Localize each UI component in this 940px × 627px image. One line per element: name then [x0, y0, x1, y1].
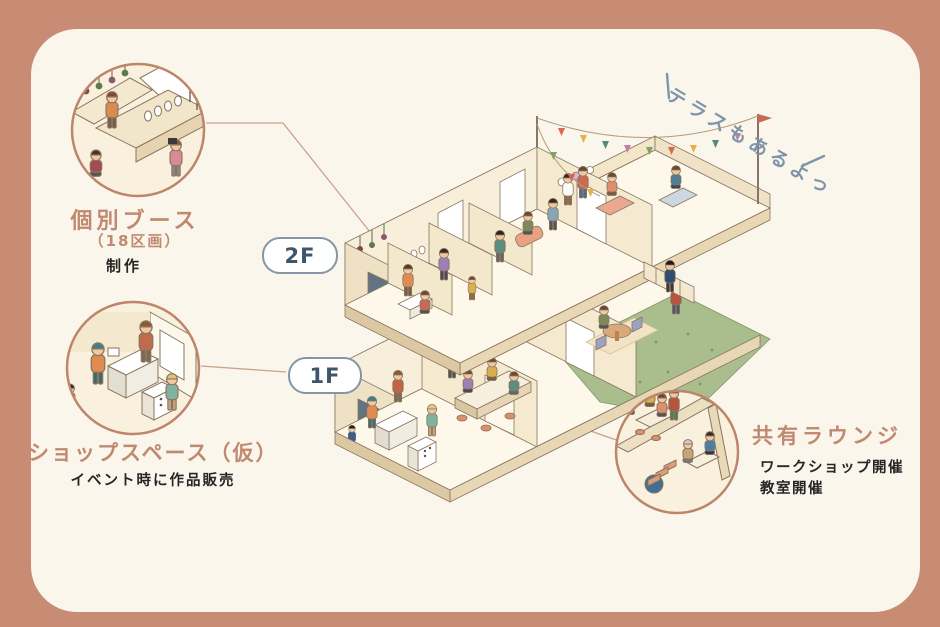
- shop-circle-illustration: [64, 302, 199, 434]
- booth-description: 制作: [30, 255, 218, 276]
- shop-title: ショップスペース（仮）: [28, 437, 278, 467]
- floor-label-2f: 2F: [262, 237, 338, 274]
- lounge-description-2: 教室開催: [760, 477, 824, 498]
- isometric-building-illustration: [0, 0, 940, 627]
- booth-circle-illustration: [72, 40, 210, 196]
- lounge-description-1: ワークショップ開催: [760, 456, 904, 477]
- infographic-floor-guide: 個別ブース （18区画） 制作 ショップスペース（仮） イベント時に作品販売 共…: [0, 0, 940, 627]
- lounge-title: 共有ラウンジ: [752, 420, 902, 450]
- floor-label-1f: 1F: [288, 357, 362, 394]
- booth-subtitle: （18区画）: [40, 230, 230, 251]
- shop-description: イベント時に作品販売: [28, 469, 278, 490]
